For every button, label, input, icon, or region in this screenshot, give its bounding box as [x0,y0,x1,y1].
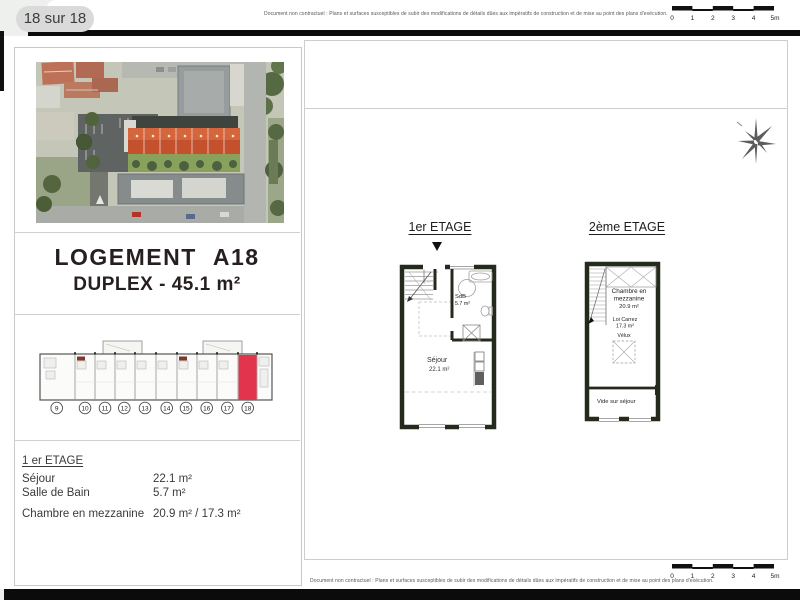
svg-text:SdB: SdB [455,294,466,300]
svg-text:22.1 m²: 22.1 m² [429,367,449,373]
svg-text:2: 2 [711,15,715,22]
document-viewer: Document non contractuel : Plans et surf… [0,0,800,600]
svg-text:13: 13 [141,405,149,412]
duplex-subtitle: DUPLEX - 45.1 m² [14,274,300,296]
svg-text:5m: 5m [770,573,779,580]
svg-text:Vide sur séjour: Vide sur séjour [597,399,636,405]
page-left-edge [0,31,4,91]
area-row-label: Salle de Bain [22,487,90,499]
previous-page-footer: Document non contractuel : Plans et surf… [46,0,800,31]
svg-text:Loi Carrez: Loi Carrez [613,317,638,323]
disclaimer-text-bottom: Document non contractuel : Plans et surf… [310,578,714,584]
scale-bar: 0 1 2 3 4 5m [670,2,784,24]
plan2-heading: 2ème ETAGE [567,220,687,234]
plans-area-box [304,108,788,560]
svg-text:3: 3 [731,573,735,580]
areas-heading: 1 er ETAGE [22,455,83,467]
svg-text:Vélux: Vélux [617,333,631,339]
area-row-value: 5.7 m² [153,487,186,499]
svg-text:17: 17 [224,405,232,412]
svg-text:5m: 5m [770,15,779,22]
svg-text:16: 16 [203,405,211,412]
svg-text:2: 2 [711,573,715,580]
svg-text:0: 0 [670,573,674,580]
svg-text:12: 12 [121,405,129,412]
disclaimer-text-top: Document non contractuel : Plans et surf… [264,11,668,17]
svg-text:11: 11 [102,405,109,412]
key-plan: 9 10 11 12 13 14 15 16 17 18 [30,338,286,422]
svg-text:4: 4 [752,573,756,580]
page-bottom-edge [4,589,800,600]
entrance-arrow-icon [432,242,442,251]
scale-bar: 0 1 2 3 4 5m [670,560,784,582]
svg-text:Séjour: Séjour [427,357,448,364]
svg-text:20.9 m²: 20.9 m² [619,304,639,310]
logement-title: LOGEMENT A18 [14,244,300,271]
svg-text:10: 10 [81,405,89,412]
area-row-label: Séjour [22,473,55,485]
section-divider [14,314,300,315]
svg-text:14: 14 [163,405,171,412]
svg-text:1: 1 [691,573,695,580]
svg-text:1: 1 [691,15,695,22]
svg-text:3: 3 [731,15,735,22]
svg-text:mezzanine: mezzanine [614,296,645,303]
svg-text:5.7 m²: 5.7 m² [455,301,470,307]
page-indicator: 18 sur 18 [16,6,94,32]
svg-text:15: 15 [182,405,190,412]
floor-plan-1: SdB 5.7 m² Séjour 22.1 m² [397,256,499,434]
right-top-box [304,40,788,110]
svg-text:9: 9 [55,405,59,412]
area-row-label: Chambre en mezzanine [22,508,144,520]
compass-icon [730,114,778,166]
section-divider [14,440,300,441]
section-divider [14,232,300,233]
svg-text:18: 18 [244,405,252,412]
area-row-value: 20.9 m² / 17.3 m² [153,508,241,520]
highlighted-unit-18 [239,355,257,399]
svg-text:4: 4 [752,15,756,22]
page-divider-line [28,30,800,36]
aerial-site-photo [36,62,284,223]
area-row-value: 22.1 m² [153,473,192,485]
svg-text:Chambre en: Chambre en [612,288,647,295]
floor-plan-2: Chambre en mezzanine 20.9 m² Loi Carrez … [581,259,665,425]
svg-text:0: 0 [670,15,674,22]
svg-text:17.3 m²: 17.3 m² [616,324,634,330]
plan1-heading: 1er ETAGE [380,220,500,234]
